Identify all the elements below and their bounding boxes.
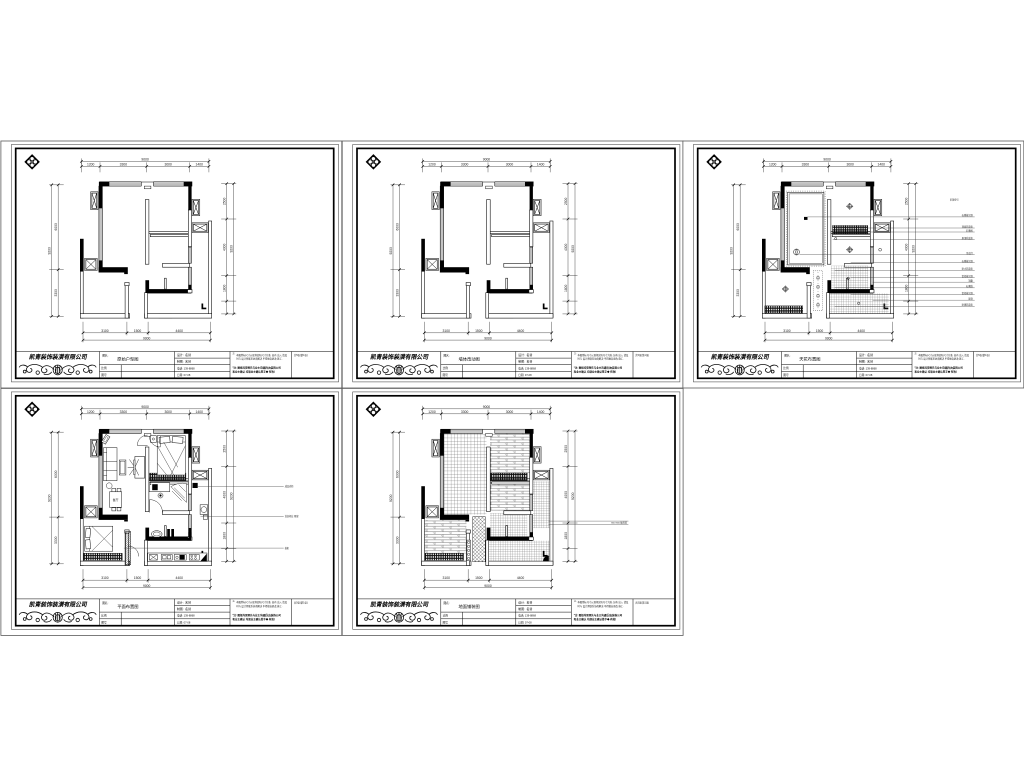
svg-text:餐厅: 餐厅 [113, 498, 119, 502]
svg-text:平面布置图: 平面布置图 [117, 603, 138, 610]
svg-text:原始户型图: 原始户型图 [117, 355, 138, 362]
svg-text:天花布置图: 天花布置图 [799, 355, 820, 362]
svg-text:地面铺装图: 地面铺装图 [459, 603, 480, 610]
svg-text:墙体改动图: 墙体改动图 [459, 355, 480, 362]
